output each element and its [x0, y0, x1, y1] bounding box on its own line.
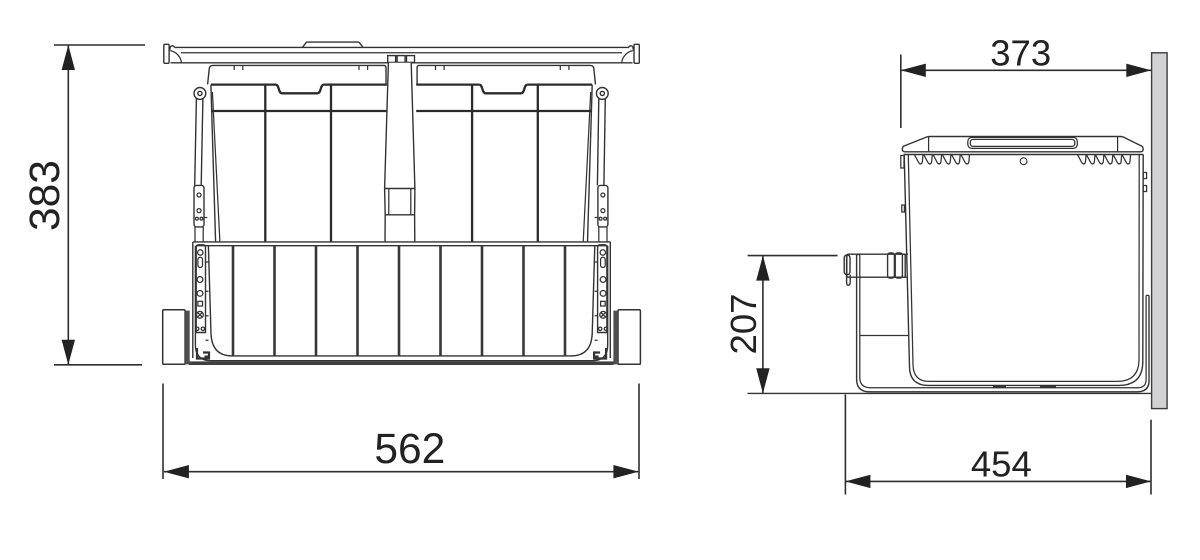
svg-text:454: 454 — [971, 444, 1032, 485]
svg-text:373: 373 — [990, 32, 1051, 73]
svg-text:383: 383 — [22, 160, 69, 231]
svg-text:562: 562 — [374, 426, 445, 473]
svg-text:207: 207 — [723, 294, 764, 355]
